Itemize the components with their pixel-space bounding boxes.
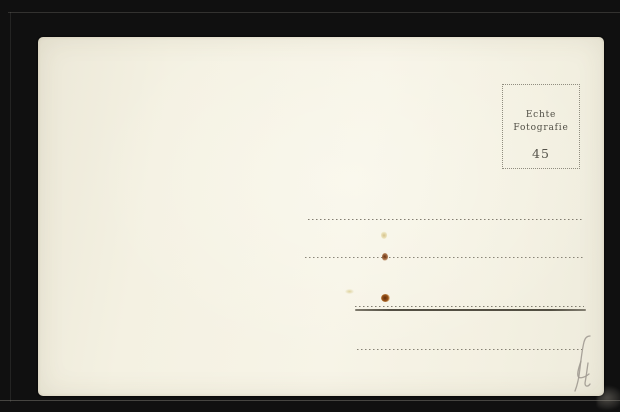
postcard: Echte Fotografie 45: [38, 37, 604, 396]
scanned-postcard-back: Echte Fotografie 45: [0, 0, 620, 412]
stamp-box-label: Echte Fotografie: [503, 109, 579, 135]
address-line: [308, 219, 584, 220]
address-line: [305, 257, 585, 258]
scan-edge-line-left: [10, 12, 11, 402]
stamp-box: Echte Fotografie 45: [502, 84, 580, 169]
stamp-box-label-line1: Echte: [526, 110, 556, 120]
scan-edge-line-top: [8, 12, 620, 13]
scan-edge-line-bottom: [0, 400, 620, 401]
handwritten-number-mark: [550, 328, 610, 400]
foxing-stain: [382, 253, 388, 261]
stamp-box-label-line2: Fotografie: [513, 123, 568, 133]
address-line: [357, 349, 582, 350]
stamp-box-number: 45: [503, 146, 579, 161]
address-line-underline: [355, 309, 586, 311]
foxing-stain: [381, 231, 387, 239]
foxing-stain: [345, 289, 354, 294]
foxing-stain: [381, 294, 390, 302]
address-line: [355, 306, 584, 307]
